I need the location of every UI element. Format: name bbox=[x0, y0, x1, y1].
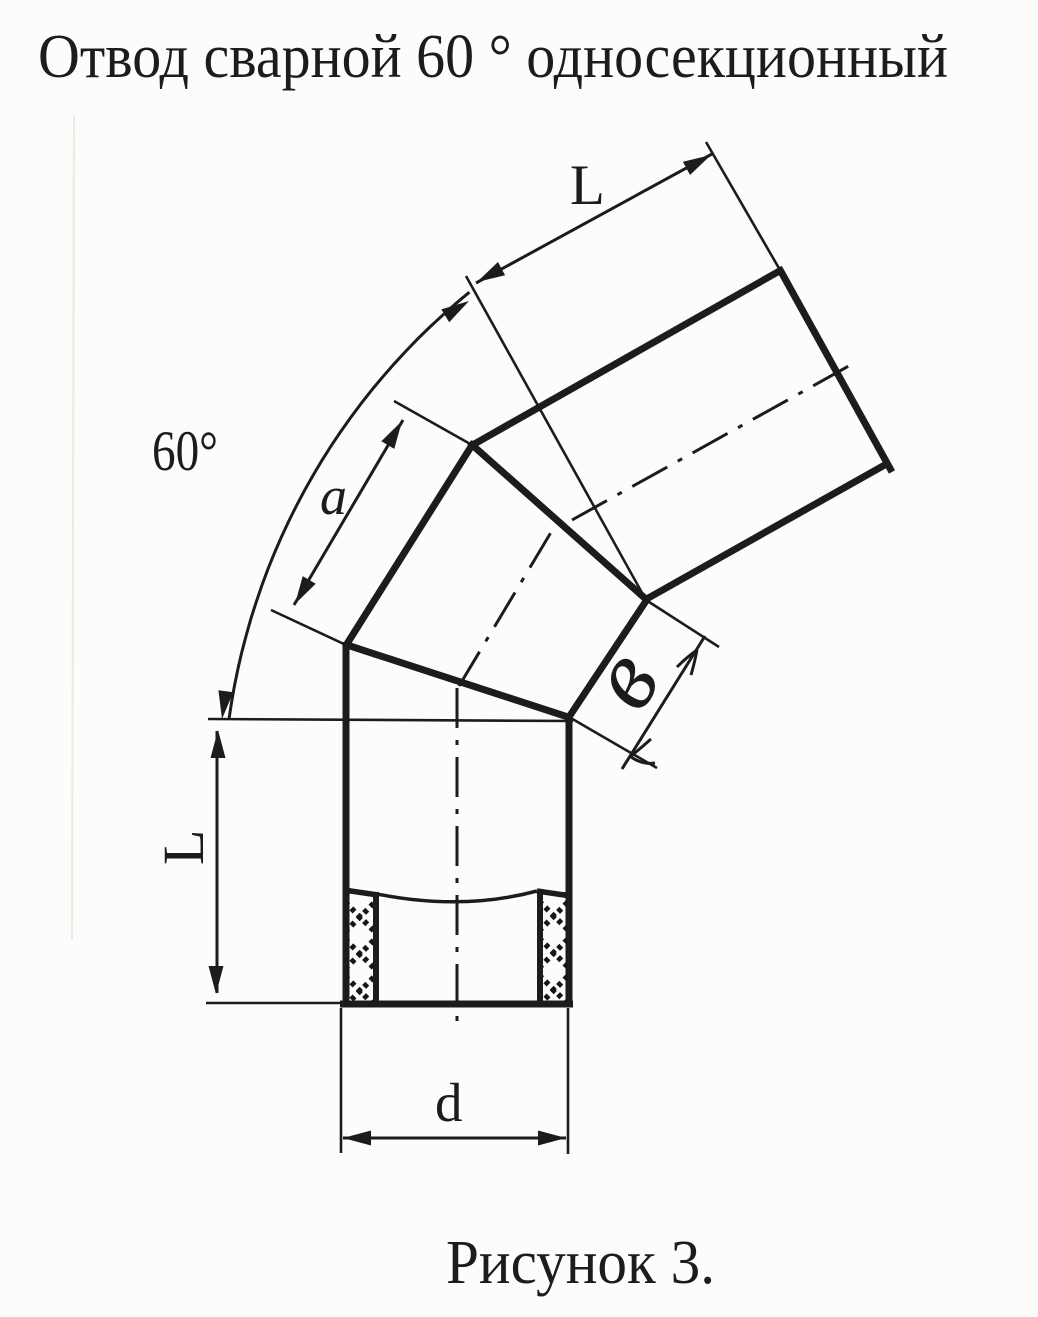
svg-text:L: L bbox=[570, 154, 605, 217]
svg-text:L: L bbox=[151, 830, 216, 865]
svg-text:Рисунок 3.: Рисунок 3. bbox=[446, 1229, 715, 1297]
svg-text:60°: 60° bbox=[152, 420, 218, 483]
svg-text:в: в bbox=[565, 631, 682, 728]
svg-text:a: a bbox=[320, 466, 347, 526]
svg-text:Отвод сварной 60 ° односекцион: Отвод сварной 60 ° односекционный bbox=[38, 23, 948, 91]
svg-text:d: d bbox=[435, 1072, 463, 1133]
